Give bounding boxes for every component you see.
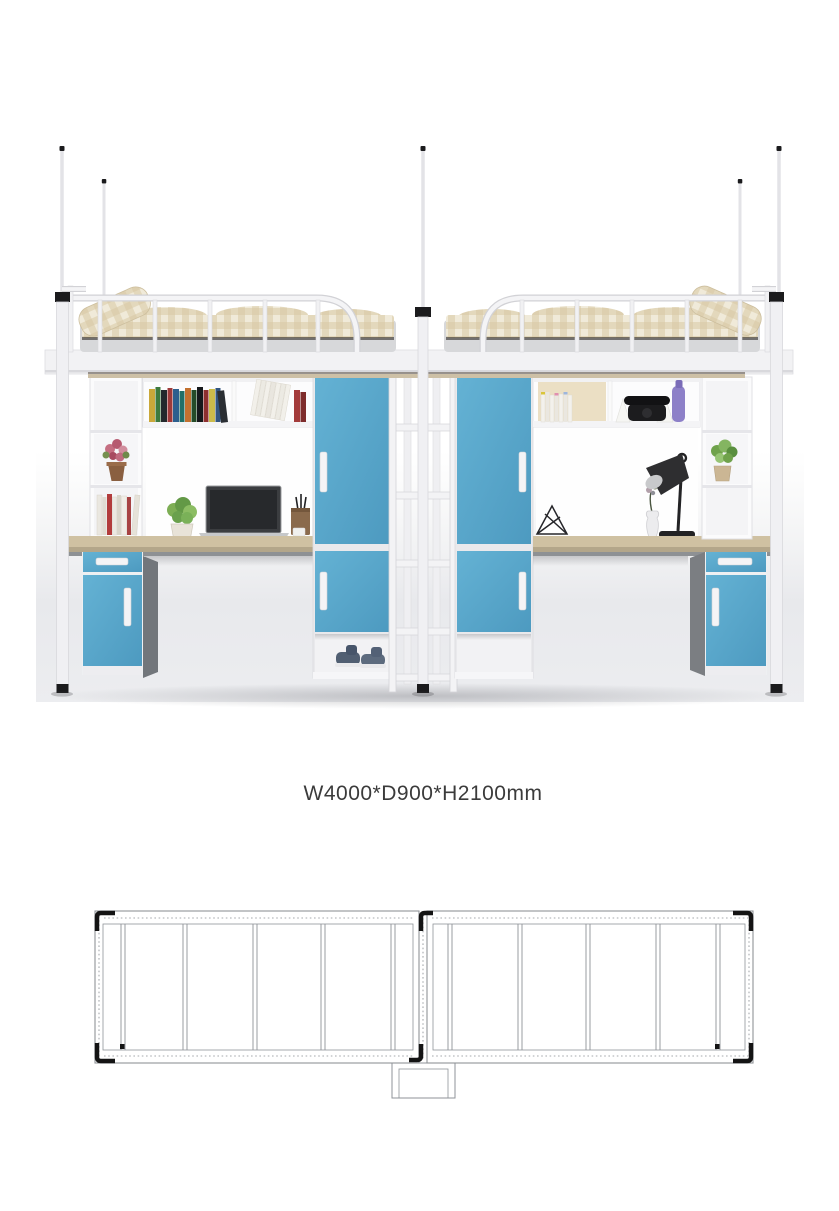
wardrobe-handle: [320, 452, 327, 492]
right-shelf-books: [541, 392, 572, 422]
product-spec-page: W4000*D900*H2100mm: [0, 0, 839, 1211]
plan-dotted-lines: [99, 914, 749, 1060]
plan-corner-brackets: [97, 913, 751, 1061]
left-loft-bed: [62, 283, 396, 352]
left-drawer-cabinet: [82, 552, 158, 678]
telephone: [624, 396, 670, 421]
wardrobe-handle: [519, 572, 526, 610]
dimensions-label: W4000*D900*H2100mm: [304, 782, 543, 805]
right-loft-bed: [444, 282, 776, 352]
pole-caps: [60, 146, 782, 184]
laptop: [199, 486, 289, 541]
left-wardrobe: [313, 374, 391, 679]
right-wardrobe: [455, 374, 533, 679]
wardrobe-handle: [519, 452, 526, 492]
plan-view-drawing: [95, 911, 753, 1098]
drawer-handle: [718, 558, 752, 565]
plan-ladder-box: [392, 1063, 455, 1098]
plan-slats: [120, 924, 720, 1050]
spec-sheet-graphic: W4000*D900*H2100mm: [0, 0, 839, 1211]
drawer-handle: [96, 558, 128, 565]
wardrobe-handle: [320, 572, 327, 610]
door-handle: [124, 588, 131, 626]
loft-bed-render: [36, 146, 804, 709]
center-post: [418, 317, 428, 685]
right-drawer-cabinet: [690, 552, 767, 676]
door-handle: [712, 588, 719, 626]
ladder-rail: [389, 352, 396, 692]
